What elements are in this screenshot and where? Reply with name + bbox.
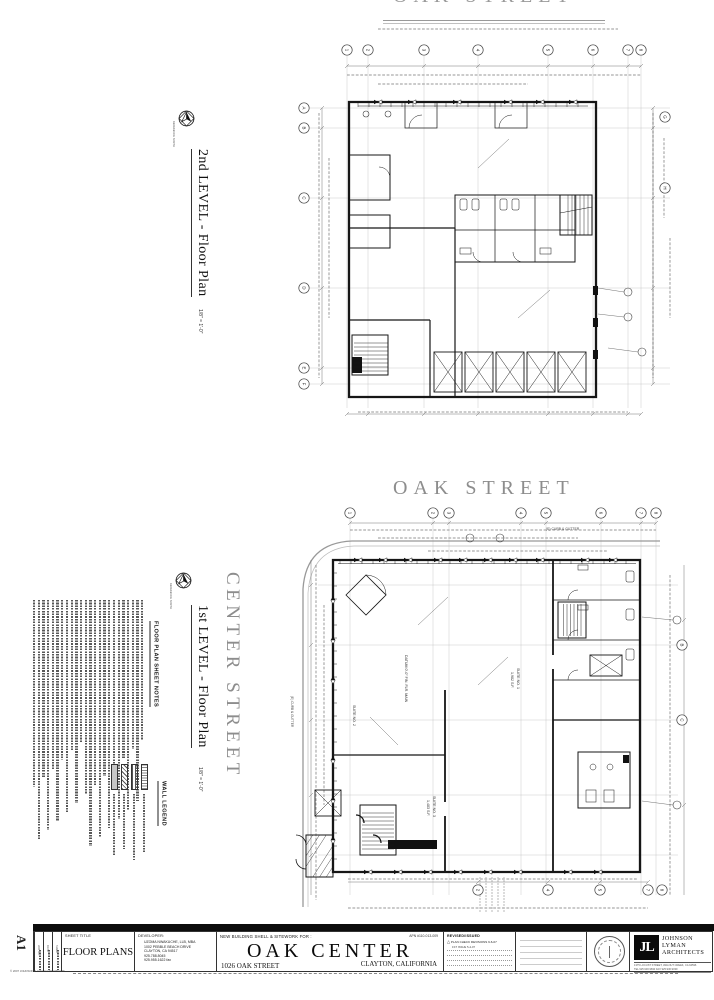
grid-bubbles: 12345678ABCDEFGH (299, 45, 670, 389)
developer-line: UZOMA NWAKUCHE, LLB, MBA (144, 940, 195, 945)
sheet-note-line (33, 600, 35, 787)
firm-logo: JL (634, 935, 659, 960)
revisions-col: REVISED/ISSUED △ PLAN CHECK REVISIONS 9-… (443, 932, 515, 971)
info-line (57, 950, 59, 970)
titleblock-bar (33, 924, 714, 931)
building-walls (349, 102, 598, 397)
suite3-area: 1,483 S.F. (426, 790, 428, 808)
svg-text:A: A (301, 107, 306, 110)
dimension-text-streaks (316, 530, 670, 913)
sheet-note-line (99, 600, 101, 837)
info-col: DATE (43, 932, 52, 971)
lower-right-room (578, 752, 630, 808)
info-col: JOB NO. (34, 932, 43, 971)
street-label-top: OAK STREET (393, 0, 575, 8)
titleblock-row: JOB NO. DATE SHEET SHEET TITLE FLOOR PLA… (33, 931, 713, 972)
wall-tag (593, 286, 598, 295)
sheet-note-line (42, 600, 44, 778)
svg-text:F: F (301, 383, 306, 386)
north-arrow-icon (175, 572, 192, 589)
project-city: CLAYTON, CALIFORNIA (361, 961, 437, 968)
oak-street-label: OAK STREET (393, 477, 575, 500)
keynote-symbols (363, 111, 646, 356)
suite2-label: SUITE NO. 2 (352, 695, 354, 713)
sheet-note-line (94, 600, 96, 785)
grid-lines (318, 518, 678, 895)
sheet-note-line (52, 600, 54, 769)
titleblock-dashed-rule (73, 973, 678, 974)
firm-address: 1375 LOCUST STREET, WALNUT CREEK, CA 945… (634, 964, 696, 967)
svg-text:E: E (301, 367, 306, 370)
sheet-notes-heading: FLOOR PLAN SHEET NOTES (150, 612, 152, 630)
project-name: OAK CENTER (217, 940, 443, 963)
firm-phone: TEL 925.930.9690 FAX 925.930.9039 (634, 968, 677, 971)
developer-label: DEVELOPER: (138, 934, 164, 938)
svg-text:B: B (679, 644, 684, 647)
second-level-plan-drawing: 12345678ABCDEFGH (278, 18, 714, 430)
north-caption: REFERENCE NORTH (172, 110, 174, 128)
north-caption: REFERENCE NORTH (169, 572, 171, 590)
sheet-note-line (141, 600, 143, 740)
firm-col: JL JOHNSON LYMAN ARCHITECTS 1375 LOCUST … (629, 932, 714, 971)
architect-stamp (594, 936, 625, 967)
building-walls (296, 560, 640, 877)
wall-legend-swatches (108, 764, 170, 868)
curb-gutter-label: (E) CURB & GUTTER (546, 527, 579, 531)
left-rooms (349, 155, 390, 248)
sheet-note-line (113, 600, 115, 767)
sheet-note-line (66, 600, 68, 812)
sheet-note-line (132, 600, 134, 749)
legend-swatch (141, 764, 148, 790)
revision-line: 1ST ISSUE 5-4-07 (452, 945, 475, 949)
project-col: NEW BUILDING SHELL & SITEWORK FOR : APN … (216, 932, 443, 971)
legend-label-line (143, 794, 145, 852)
plan1-title: 1st LEVEL - Floor Plan (191, 603, 193, 624)
firm-name-line: ARCHITECTS (662, 949, 704, 956)
sheet-note-line (56, 600, 58, 821)
apn-label: APN #110-013-009 (409, 934, 438, 938)
sheet-note-line (47, 600, 49, 830)
sheet-title-col: SHEET TITLE FLOOR PLANS (61, 932, 134, 971)
svg-text:H: H (662, 186, 667, 189)
curb-gutter-label-left: (E) CURB & GUTTER (290, 686, 292, 704)
drawing-sheet: OAK STREET (0, 0, 714, 1000)
sheet-note-line (38, 600, 40, 839)
firm-name-line: JOHNSON (662, 935, 704, 942)
outer-wall (349, 102, 596, 397)
keynote-symbols (370, 534, 681, 809)
sheet-number: A1 (13, 934, 15, 952)
revision-line: PLAN CHECK REVISIONS 9-6-07 (451, 940, 497, 944)
developer-line: 925.955.1622 fax (144, 958, 195, 963)
info-col: SHEET (52, 932, 61, 971)
svg-text:G: G (662, 115, 667, 119)
sheet-note-line (122, 600, 124, 758)
sheet-note-line (61, 600, 63, 760)
legend-label-line (123, 794, 125, 849)
stair (558, 602, 586, 638)
north-arrow-icon (178, 110, 195, 127)
sheet-note-line (80, 600, 82, 742)
revision-delta-icon: △ (447, 939, 450, 944)
suite-name-plate (388, 840, 437, 849)
dimension-lines (309, 521, 686, 895)
curb-lines (303, 541, 660, 907)
info-line (39, 950, 41, 970)
sheet-note-line (85, 600, 87, 794)
developer-col: DEVELOPER: UZOMA NWAKUCHE, LLB, MBA 1002… (134, 932, 216, 971)
firm-logo-letters: JL (639, 940, 653, 955)
street-top-clip: OAK STREET (385, 0, 607, 9)
restroom-core (553, 565, 640, 680)
datum-label: DATUM 0'-0" FIN. FLR. MAIN (404, 645, 406, 663)
wall-tag (593, 318, 598, 327)
svg-text:C: C (301, 196, 306, 199)
sheet-note-line (89, 600, 91, 846)
sheet-title-label: SHEET TITLE (65, 934, 91, 938)
legend-label-line (133, 794, 135, 860)
suite1-area: 1,982 S.F. (510, 662, 512, 680)
legend-label-line (113, 794, 115, 856)
suite1-label: SUITE NO. 1 (516, 658, 518, 676)
svg-text:C: C (679, 718, 684, 721)
sheet-title: FLOOR PLANS (62, 947, 134, 958)
svg-text:B: B (301, 127, 306, 130)
suite3-label: SUITE NO. 3 (432, 786, 434, 804)
entry-vestibule (346, 575, 386, 615)
project-address: 1026 OAK STREET (221, 962, 279, 970)
revisions-label: REVISED/ISSUED (447, 934, 480, 938)
first-level-plan-drawing: 1234567824578BC (278, 505, 714, 925)
svg-text:D: D (301, 286, 306, 289)
wall-tag (593, 350, 598, 359)
project-for-label: NEW BUILDING SHELL & SITEWORK FOR : (220, 934, 312, 939)
legend-swatch (111, 764, 118, 790)
blank-ruled-col (515, 932, 586, 971)
restroom-core (455, 195, 575, 262)
generated-details (354, 100, 588, 392)
sheet-note-line (103, 600, 105, 776)
legend-swatch (131, 764, 138, 790)
stamp-col (586, 932, 629, 971)
sheet-note-line (71, 600, 73, 751)
info-line (48, 950, 50, 970)
plan1-scale: 1/8" = 1'-0" (197, 758, 199, 776)
sheet-note-line (75, 600, 77, 803)
plan2-title: 2nd LEVEL - Floor Plan (191, 147, 193, 168)
legend-swatch (121, 764, 128, 790)
center-street-label: CENTER STREET (221, 572, 223, 594)
dimension-text-streaks (319, 29, 670, 412)
firm-name-line: LYMAN (662, 942, 704, 949)
plan2-scale: 1/8" = 1'-0" (197, 300, 199, 318)
trash-enclosure (296, 835, 333, 877)
